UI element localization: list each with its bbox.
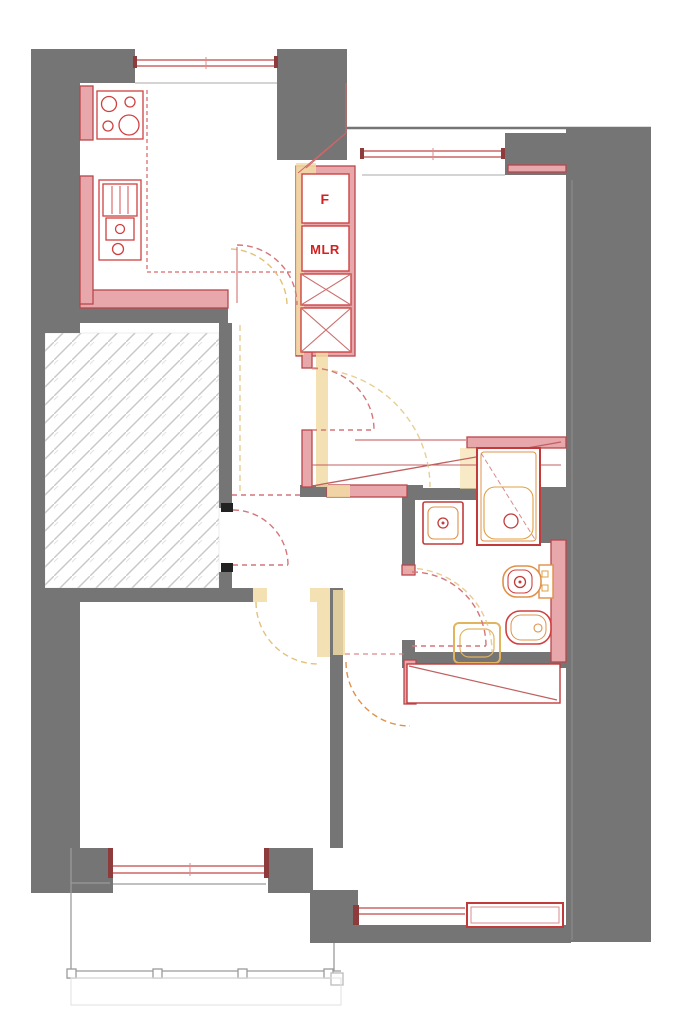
- bathroom: [423, 448, 553, 663]
- fridge-label: F: [320, 191, 329, 207]
- bedroom1-door: [312, 368, 430, 487]
- floor-plan: F MLR: [0, 0, 686, 1024]
- bathroom-door: [407, 568, 492, 652]
- kitchen-door: [231, 245, 297, 305]
- radiator: [467, 903, 563, 927]
- counter-outline: [147, 90, 293, 272]
- bedroom2-window: [359, 908, 465, 914]
- stove: [97, 91, 143, 139]
- stairwell-hatch: [45, 333, 219, 588]
- demolition-overlays: [253, 163, 540, 657]
- kitchen-window: [135, 57, 277, 83]
- bedroom1-window: [362, 148, 505, 175]
- living-room-door: [256, 602, 318, 664]
- entrance-door-jambs: [221, 503, 233, 572]
- bedroom2-door: [345, 654, 410, 726]
- kitchen-sink: [99, 180, 141, 260]
- balcony-lower-step: [71, 978, 341, 1005]
- kitchen: [97, 90, 293, 272]
- floor-plan-drawing: F MLR: [0, 0, 686, 1024]
- mlr-label: MLR: [310, 242, 340, 257]
- bidet: [506, 611, 551, 644]
- bedroom2-wardrobe: [407, 664, 560, 703]
- hand-basin: [423, 502, 463, 544]
- entrance-door: [233, 510, 288, 565]
- shower: [477, 448, 540, 545]
- toilet: [503, 565, 553, 598]
- living-room-window: [113, 863, 266, 884]
- cabinet-stack: F MLR: [301, 174, 351, 352]
